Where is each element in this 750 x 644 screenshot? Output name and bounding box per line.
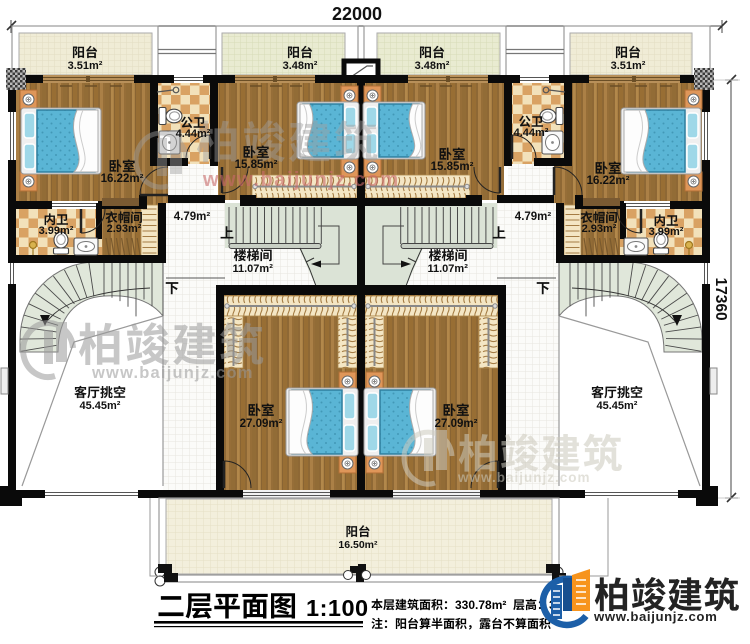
svg-text:11.07m²: 11.07m² [233,263,274,275]
svg-text:3.48m²: 3.48m² [415,60,450,72]
svg-text:45.45m²: 45.45m² [80,400,121,412]
svg-text:22000: 22000 [332,4,382,24]
svg-text:16.22m²: 16.22m² [587,175,630,187]
svg-text:3.51m²: 3.51m² [68,60,103,72]
svg-text:330.78m²: 330.78m² [455,598,506,612]
svg-text:3.51m²: 3.51m² [611,60,646,72]
svg-text:3.99m²: 3.99m² [649,226,684,238]
svg-text:16.50m²: 16.50m² [338,539,378,551]
svg-text:11.07m²: 11.07m² [428,263,469,275]
svg-text:4.79m²: 4.79m² [515,211,552,223]
svg-text:4.44m²: 4.44m² [176,128,211,140]
svg-text:4.44m²: 4.44m² [514,127,549,139]
svg-text:4.79m²: 4.79m² [174,211,211,223]
svg-text:2.93m²: 2.93m² [582,223,617,235]
svg-text:www.baijunjz.com: www.baijunjz.com [593,609,717,624]
svg-text:www.baijunjz.com: www.baijunjz.com [457,470,591,485]
svg-text:15.85m²: 15.85m² [235,159,278,171]
svg-text:27.09m²: 27.09m² [240,418,283,430]
svg-text:16.22m²: 16.22m² [101,173,144,185]
svg-text:45.45m²: 45.45m² [597,400,638,412]
svg-text:3.48m²: 3.48m² [283,60,318,72]
svg-text:www.baijunjz.com: www.baijunjz.com [202,169,400,191]
svg-text:15.85m²: 15.85m² [431,161,474,173]
svg-text:www.baijunjz.com: www.baijunjz.com [91,364,254,382]
svg-text:1:100: 1:100 [306,595,369,621]
svg-text:2.93m²: 2.93m² [107,223,142,235]
svg-text:3.99m²: 3.99m² [39,225,74,237]
svg-text:17360: 17360 [712,278,729,321]
svg-text:27.09m²: 27.09m² [435,418,478,430]
